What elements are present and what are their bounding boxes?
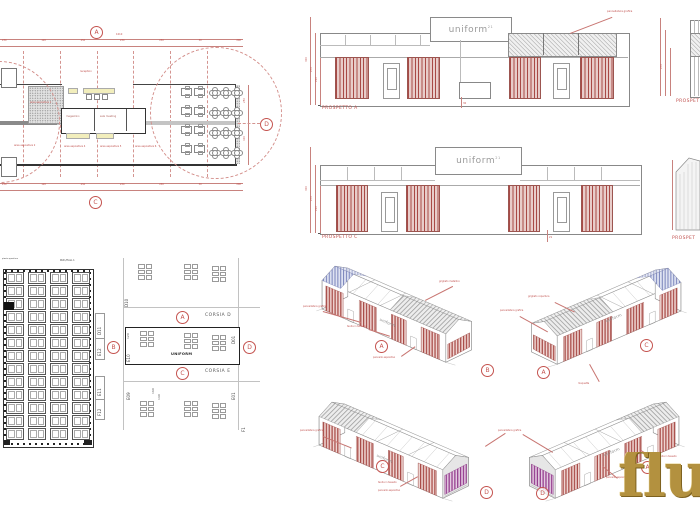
hall-booth-cell bbox=[6, 324, 24, 336]
dim-line bbox=[320, 185, 321, 233]
drawing-sheet: A C D 1010 23012025023025030200 area esp… bbox=[0, 0, 700, 525]
booth-e10: E10 bbox=[126, 346, 131, 362]
dim-value: 250 bbox=[81, 183, 86, 186]
hall-booth-cell bbox=[6, 376, 24, 388]
elevation-c-label: PROSPETTO C bbox=[322, 235, 358, 240]
transom-mullion bbox=[345, 35, 346, 45]
transom-mullion bbox=[420, 35, 421, 45]
hall-booth-cell bbox=[72, 272, 90, 284]
axis-d-line bbox=[238, 123, 260, 124]
dim-value: 270 bbox=[661, 64, 664, 69]
hall-booth-cell bbox=[50, 376, 68, 388]
dim-line bbox=[672, 160, 673, 230]
furniture-left bbox=[1, 157, 17, 177]
axon-note: pannellatura grafica bbox=[498, 430, 521, 433]
tick-value: 21 bbox=[549, 237, 552, 240]
curtain-panel bbox=[336, 185, 368, 232]
hall-booth-cell bbox=[50, 428, 68, 440]
view-marker-d: D bbox=[536, 487, 549, 500]
floor-plan: A C D 1010 23012025023025030200 area esp… bbox=[0, 15, 292, 217]
leader-line bbox=[570, 17, 612, 34]
dim-line bbox=[315, 33, 316, 105]
hall-booth-cell bbox=[72, 415, 90, 427]
hall-booth-cell bbox=[50, 298, 68, 310]
watermark-text: flu bbox=[618, 452, 700, 511]
hall-booth-cell bbox=[72, 363, 90, 375]
hall-booth-cell bbox=[28, 415, 46, 427]
transom-line bbox=[520, 180, 640, 181]
dim-value: 300 bbox=[306, 186, 309, 191]
hall-booth-cell bbox=[50, 415, 68, 427]
elevation-d-partial: PROSPET bbox=[670, 150, 700, 245]
dim-line bbox=[660, 18, 661, 96]
hall-booth-cell bbox=[50, 350, 68, 362]
transom-line bbox=[320, 180, 435, 181]
hall-booth-cell bbox=[72, 285, 90, 297]
corsia-d-label: CORSIA D bbox=[205, 313, 231, 318]
furniture-left bbox=[1, 68, 17, 88]
hall-booth-cell bbox=[28, 272, 46, 284]
dim-line bbox=[670, 48, 671, 96]
booth-d11: D11 bbox=[97, 316, 102, 335]
transom-mullion bbox=[574, 167, 575, 180]
uniform-sign: uniform21 bbox=[430, 17, 512, 42]
uniform-logo: uniform21 bbox=[449, 25, 494, 35]
hall-booth-cell bbox=[72, 389, 90, 401]
booth-e01: E01 bbox=[231, 384, 236, 400]
hall-booth-cell bbox=[28, 324, 46, 336]
hall-note: pianta quartiere bbox=[2, 258, 18, 260]
dim-value: 210 bbox=[316, 77, 319, 82]
dim-right-2: 400 bbox=[244, 136, 247, 141]
corridor-marker-b: B bbox=[107, 341, 120, 354]
curtain-panel bbox=[581, 185, 613, 232]
hall-booth-cell bbox=[28, 285, 46, 297]
uniform-sign: uniform21 bbox=[435, 147, 522, 175]
curtain-panel bbox=[580, 57, 614, 99]
doorway bbox=[381, 192, 398, 232]
hall-booth-cell bbox=[72, 311, 90, 323]
hall-booth-cell bbox=[28, 350, 46, 362]
curtain-panel bbox=[335, 57, 369, 99]
dim-value: 230 bbox=[2, 183, 7, 186]
axon-drawing: uniform bbox=[300, 386, 500, 524]
axon-note: grigliato copertura bbox=[528, 296, 549, 299]
hall-booth-cell bbox=[6, 415, 24, 427]
hall-booth-cell bbox=[72, 402, 90, 414]
hall-booth-cell bbox=[6, 428, 24, 440]
dim-value: 300 bbox=[657, 54, 659, 59]
elevation-b-label: PROSPET bbox=[676, 99, 699, 104]
axon-note: tenda in tessuto bbox=[378, 482, 397, 485]
gold-watermark: flu bbox=[612, 452, 700, 525]
aisle-line bbox=[123, 307, 260, 308]
sign-support bbox=[460, 40, 461, 82]
transom-mullion bbox=[347, 167, 348, 180]
square-table bbox=[181, 107, 192, 115]
axon-note: pannello espositivo bbox=[378, 490, 400, 493]
elevation-b-partial: 300 270 PROSPET bbox=[657, 10, 700, 110]
axon-drawing: uniform bbox=[303, 250, 503, 388]
dim-160: 160 bbox=[151, 385, 155, 394]
hall-booth-cell bbox=[72, 350, 90, 362]
logo-sup: 21 bbox=[488, 25, 494, 29]
hall-booth-cell bbox=[28, 298, 46, 310]
elevation-a-label: PROSPETTO A bbox=[322, 106, 358, 111]
hall-booth-cell bbox=[50, 363, 68, 375]
hall-booth-cell bbox=[28, 376, 46, 388]
hall-booth-cell bbox=[28, 311, 46, 323]
axon-note: tenda in tessuto bbox=[347, 326, 366, 329]
dim-line-right bbox=[248, 85, 249, 165]
hall-booth-cell bbox=[28, 337, 46, 349]
dim-value: 210 bbox=[316, 206, 319, 211]
axon-note: pannellatura grafica bbox=[303, 306, 326, 309]
hall-booth-cell bbox=[50, 272, 68, 284]
hall-booth-cell bbox=[6, 363, 24, 375]
doorway bbox=[553, 192, 570, 232]
square-table bbox=[181, 145, 192, 153]
transom-line bbox=[320, 45, 430, 46]
axon-view-ac: uniform grigliato copertura pannellatura… bbox=[500, 252, 700, 397]
view-marker-c: C bbox=[640, 339, 653, 352]
axon-view-ab: uniform pannellatura grafica tenda in te… bbox=[303, 250, 510, 392]
axon-note: pannello espositivo bbox=[373, 357, 395, 360]
hall-ticks-bottom bbox=[5, 443, 90, 445]
hall-booth-cell bbox=[72, 298, 90, 310]
transom-mullion bbox=[395, 35, 396, 45]
hall-grid bbox=[6, 272, 90, 442]
transom-mullion bbox=[374, 167, 375, 180]
dim-value: 300 bbox=[306, 57, 309, 62]
view-marker-d: D bbox=[480, 486, 493, 499]
graphic-band bbox=[508, 33, 617, 57]
hall-booth-cell bbox=[6, 402, 24, 414]
hall-block bbox=[84, 440, 92, 445]
booth-d10: D10 bbox=[124, 287, 129, 307]
booth-group bbox=[138, 264, 152, 280]
dim-line bbox=[665, 30, 666, 96]
axon-view-cd: uniform pannellatura grafica tenda in te… bbox=[300, 386, 507, 525]
booth-group bbox=[212, 403, 226, 419]
booth-plan: D10 A CORSIA D 120 E10 D01 UNIFORM B D C… bbox=[95, 258, 260, 440]
elevation-d-label: PROSPET bbox=[672, 236, 695, 241]
corridor-marker-c: C bbox=[176, 367, 189, 380]
view-marker-a: A bbox=[537, 366, 550, 379]
hall-booth-cell bbox=[6, 389, 24, 401]
hall-booth-cell bbox=[6, 311, 24, 323]
transom-mullion bbox=[547, 167, 548, 180]
elevation-c: 300 270 210 uniform21 21 PROSPETTO C bbox=[305, 135, 663, 250]
hall-title: PAD./HALL 1 bbox=[60, 260, 75, 263]
booth-group bbox=[212, 335, 226, 351]
curtain-panel bbox=[508, 185, 540, 232]
dim-line bbox=[320, 57, 321, 105]
hall-booth-cell bbox=[50, 285, 68, 297]
dim-value: 30 bbox=[199, 183, 202, 186]
aisle-line bbox=[123, 381, 260, 382]
logo-sup: 21 bbox=[495, 156, 501, 160]
dim-value: 120 bbox=[41, 183, 46, 186]
curtain-panel bbox=[509, 57, 541, 99]
booth-d01: D01 bbox=[231, 328, 236, 344]
square-table bbox=[194, 126, 205, 134]
view-marker-c: C bbox=[376, 460, 389, 473]
sliver-line bbox=[694, 20, 695, 96]
axon-note: pannellatura grafica bbox=[300, 430, 323, 433]
booth-f1: F1 bbox=[241, 420, 246, 432]
hall-booth-cell bbox=[6, 285, 24, 297]
dim-tick bbox=[461, 97, 462, 108]
hall-booth-cell bbox=[72, 337, 90, 349]
uniform-booth-highlight bbox=[4, 302, 14, 310]
hall-booth-cell bbox=[6, 350, 24, 362]
booth-group bbox=[184, 333, 198, 349]
stand-width-dim: 120 bbox=[126, 329, 130, 339]
axon-note: pannellatura grafica bbox=[500, 310, 523, 313]
dim-right-1: 250 bbox=[244, 98, 247, 103]
booth-group bbox=[212, 266, 226, 282]
desk bbox=[459, 82, 491, 99]
view-marker-a: A bbox=[375, 340, 388, 353]
hall-block bbox=[4, 440, 10, 445]
booth-group bbox=[140, 331, 154, 347]
transom-mullion bbox=[401, 167, 402, 180]
hall-booth-cell bbox=[50, 402, 68, 414]
dim-line bbox=[310, 147, 311, 233]
booth-e12: E12 bbox=[97, 340, 102, 356]
hall-booth-cell bbox=[28, 389, 46, 401]
hall-booth-cell bbox=[50, 311, 68, 323]
corsia-e-label: CORSIA E bbox=[205, 369, 231, 374]
hall-booth-cell bbox=[28, 363, 46, 375]
dim-value: 250 bbox=[159, 183, 164, 186]
dim-value: 200 bbox=[236, 183, 241, 186]
hall-plan: pianta quartiere PAD./HALL 1 bbox=[2, 258, 94, 464]
doorway bbox=[553, 63, 570, 99]
corridor-marker-d: D bbox=[243, 341, 256, 354]
hall-booth-cell bbox=[28, 428, 46, 440]
booth-group bbox=[184, 264, 198, 280]
doorway bbox=[383, 63, 400, 99]
square-table bbox=[181, 88, 192, 96]
hall-booth-cell bbox=[50, 324, 68, 336]
curtain-panel bbox=[406, 185, 440, 232]
booth-group bbox=[140, 401, 154, 417]
dim-value: 230 bbox=[120, 183, 125, 186]
band-division bbox=[543, 33, 544, 55]
square-table bbox=[194, 107, 205, 115]
dim-line bbox=[310, 17, 311, 105]
axon-note: grigliato metallico bbox=[439, 281, 460, 284]
uniform-stand-label: UNIFORM bbox=[171, 352, 192, 356]
booth-f12: F12 bbox=[97, 401, 102, 416]
dim-line bbox=[315, 165, 316, 233]
uniform-logo: uniform21 bbox=[456, 156, 501, 166]
hall-booth-cell bbox=[72, 376, 90, 388]
sliver-line bbox=[698, 20, 699, 96]
square-table bbox=[181, 126, 192, 134]
gable-end bbox=[670, 150, 700, 235]
hall-booth-cell bbox=[50, 389, 68, 401]
transom-mullion bbox=[370, 35, 371, 45]
hall-booth-cell bbox=[6, 272, 24, 284]
band-division bbox=[578, 33, 579, 55]
corridor-marker-a: A bbox=[176, 311, 189, 324]
hall-booth-cell bbox=[50, 337, 68, 349]
curtain-panel bbox=[407, 57, 440, 99]
hall-booth-cell bbox=[6, 337, 24, 349]
band-note: pannellatura grafica bbox=[607, 11, 632, 14]
dim-values-bottom: 23012025023025030200 bbox=[2, 184, 241, 187]
sliver-hatch bbox=[690, 33, 700, 57]
dim-line-bottom2 bbox=[0, 190, 243, 191]
dim-value: 270 bbox=[311, 196, 314, 201]
view-marker-b: B bbox=[481, 364, 494, 377]
dim-value: 270 bbox=[311, 67, 314, 72]
dim-140: 140 bbox=[157, 391, 161, 400]
hall-booth-cell bbox=[72, 324, 90, 336]
dim-tick bbox=[547, 230, 548, 242]
hall-booth-cell bbox=[72, 428, 90, 440]
aisle-line bbox=[123, 258, 124, 430]
booth-e11: E11 bbox=[97, 379, 102, 396]
booth-group bbox=[184, 401, 198, 417]
booth-e09: E09 bbox=[126, 384, 131, 400]
square-table bbox=[194, 145, 205, 153]
square-table bbox=[194, 88, 205, 96]
transom-mullion bbox=[601, 167, 602, 180]
tick-value: 30 bbox=[463, 103, 466, 106]
elevation-a: 300 270 210 uniform21 pannellatura grafi… bbox=[305, 8, 663, 123]
hall-booth-cell bbox=[28, 402, 46, 414]
